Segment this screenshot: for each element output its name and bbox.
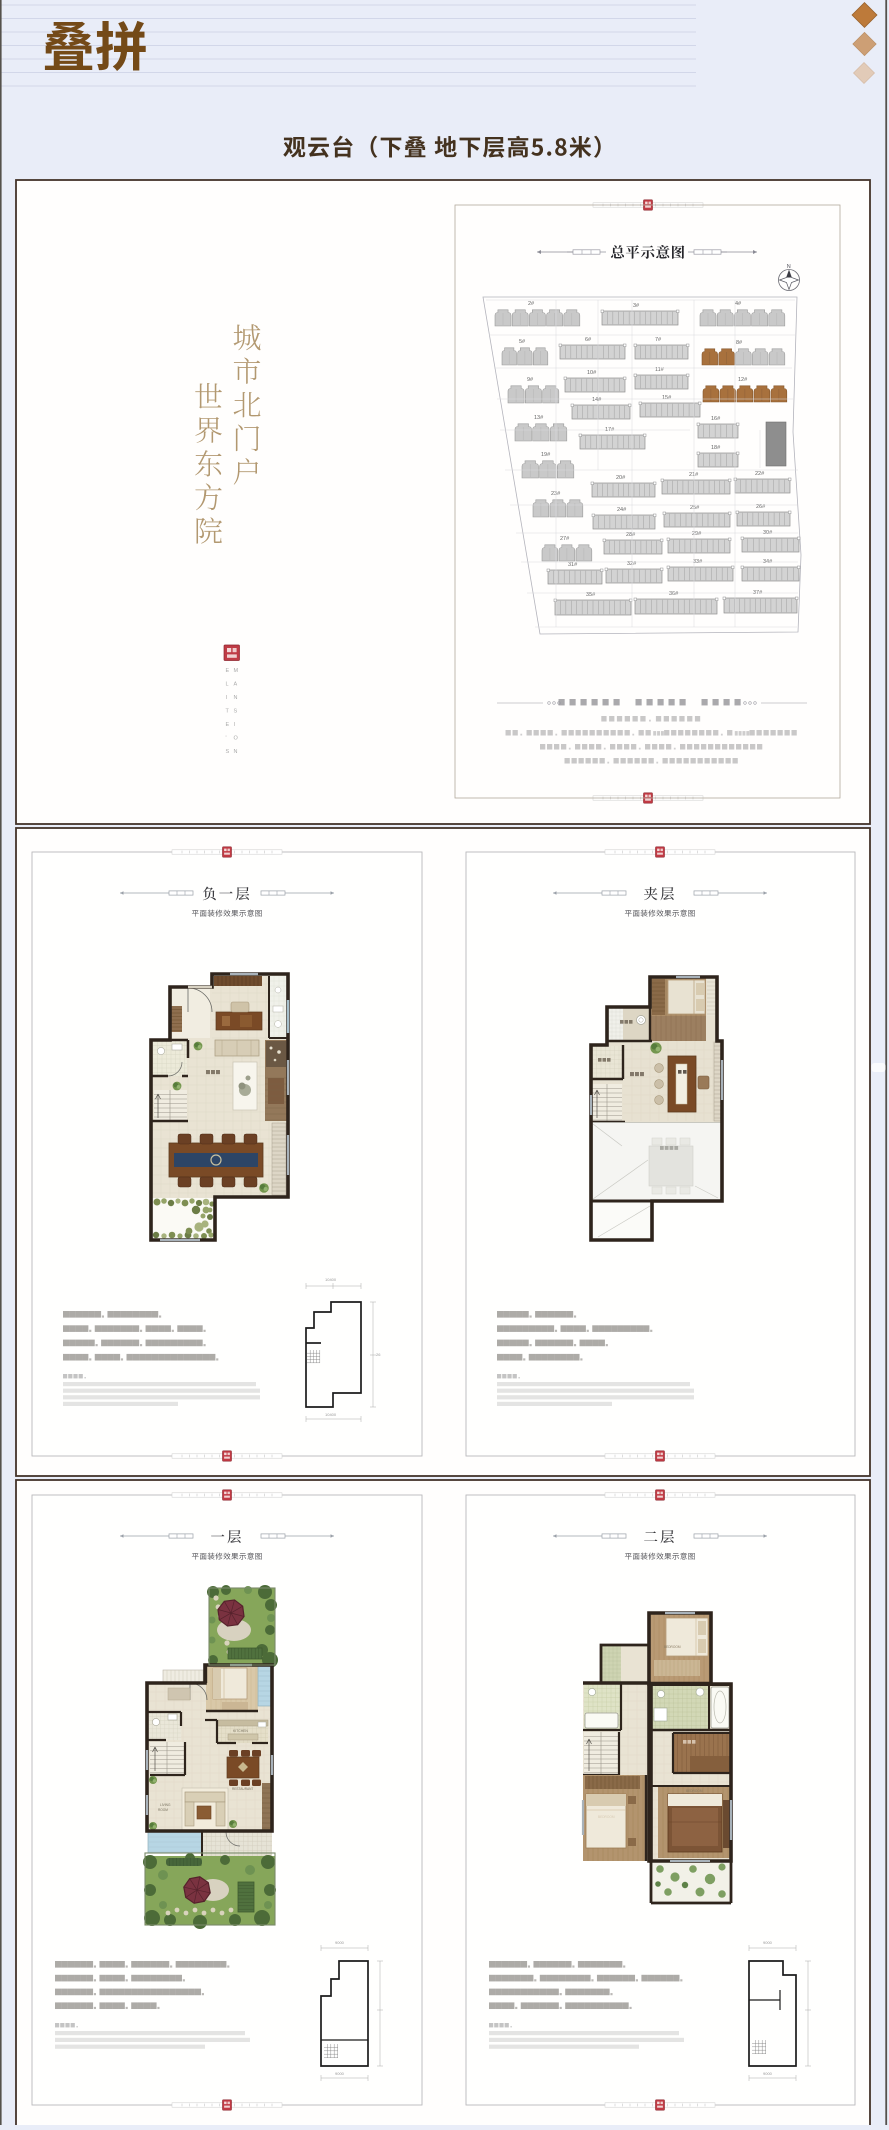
- svg-text:22#: 22#: [755, 471, 765, 477]
- svg-text:3#: 3#: [633, 303, 640, 309]
- svg-text:6#: 6#: [585, 337, 592, 343]
- svg-text:LIVING: LIVING: [160, 1803, 171, 1807]
- svg-text:9#: 9#: [527, 377, 534, 383]
- svg-text:10#: 10#: [587, 370, 597, 376]
- svg-text:27#: 27#: [560, 536, 570, 542]
- svg-text:': ': [226, 736, 227, 742]
- svg-text:9000: 9000: [763, 1940, 773, 1945]
- svg-text:10400: 10400: [325, 1412, 337, 1417]
- svg-text:L: L: [226, 682, 229, 688]
- svg-text:M: M: [234, 668, 239, 674]
- svg-text:8#: 8#: [736, 340, 743, 346]
- svg-text:24#: 24#: [617, 507, 627, 513]
- svg-text:E: E: [226, 722, 230, 728]
- svg-text:14#: 14#: [592, 397, 602, 403]
- svg-text:S: S: [226, 749, 230, 755]
- svg-text:4#: 4#: [735, 301, 742, 307]
- svg-text:ROOM: ROOM: [158, 1808, 168, 1812]
- svg-text:N: N: [234, 749, 238, 755]
- svg-text:S: S: [234, 709, 238, 715]
- svg-text:18#: 18#: [711, 445, 721, 451]
- svg-text:RESTAURANT: RESTAURANT: [232, 1787, 253, 1791]
- svg-text:31#: 31#: [568, 562, 578, 568]
- svg-text:15#: 15#: [662, 395, 672, 401]
- svg-text:16#: 16#: [711, 416, 721, 422]
- svg-text:BEDROOM: BEDROOM: [598, 1815, 615, 1819]
- svg-text:13#: 13#: [534, 415, 544, 421]
- svg-text:N: N: [234, 695, 238, 701]
- svg-text:36#: 36#: [669, 591, 679, 597]
- svg-text:N: N: [787, 264, 791, 270]
- svg-text:5#: 5#: [519, 339, 526, 345]
- svg-text:9000: 9000: [335, 2071, 345, 2076]
- svg-text:BEDROOM: BEDROOM: [686, 1789, 703, 1793]
- svg-text:19#: 19#: [541, 452, 551, 458]
- svg-text:O: O: [234, 736, 239, 742]
- svg-text:29#: 29#: [692, 531, 702, 537]
- svg-text:9000: 9000: [763, 2071, 773, 2076]
- svg-text:25#: 25#: [690, 505, 700, 511]
- svg-text:10400: 10400: [325, 1277, 337, 1282]
- svg-text:9000: 9000: [335, 1940, 345, 1945]
- svg-text:E: E: [226, 668, 230, 674]
- svg-text:12#: 12#: [738, 377, 748, 383]
- svg-text:2#: 2#: [528, 301, 535, 307]
- svg-text:BEDROOM: BEDROOM: [664, 1645, 681, 1649]
- svg-text:26: 26: [376, 1352, 381, 1357]
- svg-text:A: A: [234, 682, 238, 688]
- svg-text:20#: 20#: [616, 475, 626, 481]
- svg-text:KITCHEN: KITCHEN: [233, 1729, 248, 1733]
- svg-text:7#: 7#: [655, 337, 662, 343]
